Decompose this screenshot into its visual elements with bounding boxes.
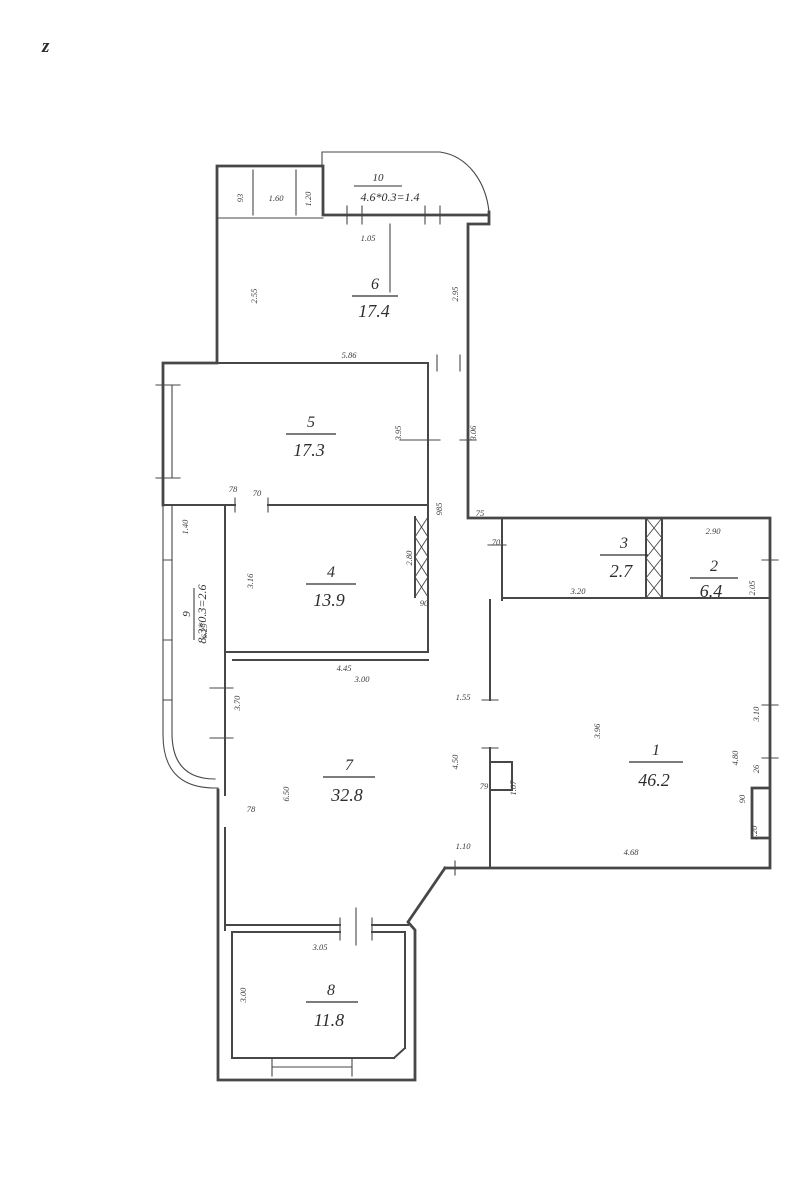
dim: 90 — [420, 598, 429, 608]
dim: 2.80 — [404, 550, 414, 566]
room-5-number: 5 — [307, 414, 315, 431]
room-8-area: 11.8 — [314, 1010, 344, 1030]
dim: 3.00 — [238, 987, 248, 1004]
dim: 78 — [247, 804, 256, 814]
dim: 78 — [229, 484, 238, 494]
room-label-2: 2 6.4 — [690, 558, 738, 601]
floor-plan-sheet: z 10 4.6*0.3=1.4 6 — [0, 0, 786, 1200]
dim: 4.68 — [624, 847, 640, 857]
vent-shaft-hatch-right — [646, 518, 662, 598]
dim: 3.70 — [232, 695, 242, 712]
dim: 3.20 — [570, 586, 587, 596]
dim: 1.55 — [456, 692, 471, 702]
dim: 75 — [476, 508, 485, 518]
balcony-and-thin-lines — [163, 152, 489, 1076]
room-label-7: 7 32.8 — [323, 757, 375, 805]
dim: 2.90 — [706, 526, 722, 536]
room-3-number: 3 — [619, 535, 628, 552]
dim: 4.50 — [450, 754, 460, 770]
dim: 93 — [235, 194, 245, 203]
room-4-area: 13.9 — [313, 590, 345, 610]
dim: 3.06 — [468, 425, 478, 442]
room-10-number: 10 — [373, 172, 385, 184]
room-label-8: 8 11.8 — [306, 982, 358, 1030]
dim: 3.16 — [245, 573, 255, 590]
dim: 70 — [253, 488, 262, 498]
apartment-floor-plan: 10 4.6*0.3=1.4 6 17.4 5 17.3 4 13.9 3 — [0, 0, 786, 1200]
room-label-1: 1 46.2 — [629, 742, 683, 790]
dim: 1.05 — [361, 233, 376, 243]
room-label-4: 4 13.9 — [306, 564, 356, 610]
room-label-10: 10 4.6*0.3=1.4 — [354, 172, 420, 204]
dim: 3.96 — [592, 723, 602, 740]
room-6-number: 6 — [371, 276, 379, 293]
vent-shaft-hatch-left — [415, 517, 428, 597]
dim: 3.95 — [393, 426, 403, 442]
dim: 70 — [492, 537, 501, 547]
dim: 6.29 — [199, 623, 209, 639]
dim: 1.40 — [180, 519, 190, 535]
room-7-area: 32.8 — [330, 785, 363, 805]
dim: 90 — [737, 794, 747, 803]
room-6-area: 17.4 — [358, 301, 390, 321]
dim: 79 — [480, 781, 489, 791]
dim: 3.05 — [312, 942, 328, 952]
dim: 2.95 — [450, 287, 460, 302]
dim: 1.20 — [749, 825, 759, 841]
dim: 985 — [434, 503, 444, 516]
partition-walls — [163, 363, 770, 1058]
dim: 4.45 — [337, 663, 352, 673]
dim: 4.80 — [730, 750, 740, 766]
room-3-area: 2.7 — [610, 561, 634, 581]
dim: 2.55 — [249, 289, 259, 304]
room-1-area: 46.2 — [638, 770, 670, 790]
room-5-area: 17.3 — [293, 440, 325, 460]
room-2-number: 2 — [710, 558, 718, 575]
dim: 6.50 — [281, 786, 291, 802]
dim: 2.05 — [747, 581, 757, 596]
dim: 3.10 — [751, 706, 761, 723]
room-9-number: 9 — [181, 611, 193, 617]
room-label-3: 3 2.7 — [600, 535, 648, 581]
dim: 1.20 — [303, 191, 313, 207]
room-8-number: 8 — [327, 982, 335, 999]
room-label-6: 6 17.4 — [352, 276, 398, 321]
room-7-number: 7 — [345, 757, 354, 774]
room-2-area: 6.4 — [700, 581, 723, 601]
room-label-5: 5 17.3 — [286, 414, 336, 460]
dim: 3.00 — [354, 674, 371, 684]
room-10-area: 4.6*0.3=1.4 — [360, 190, 419, 204]
dim: 1.60 — [269, 193, 285, 203]
dim: 1.07 — [508, 780, 518, 796]
room-4-number: 4 — [327, 564, 335, 581]
dim: 5.86 — [342, 350, 358, 360]
dim: 1.10 — [456, 841, 472, 851]
room-1-number: 1 — [652, 742, 660, 759]
dim: 26 — [751, 764, 761, 773]
